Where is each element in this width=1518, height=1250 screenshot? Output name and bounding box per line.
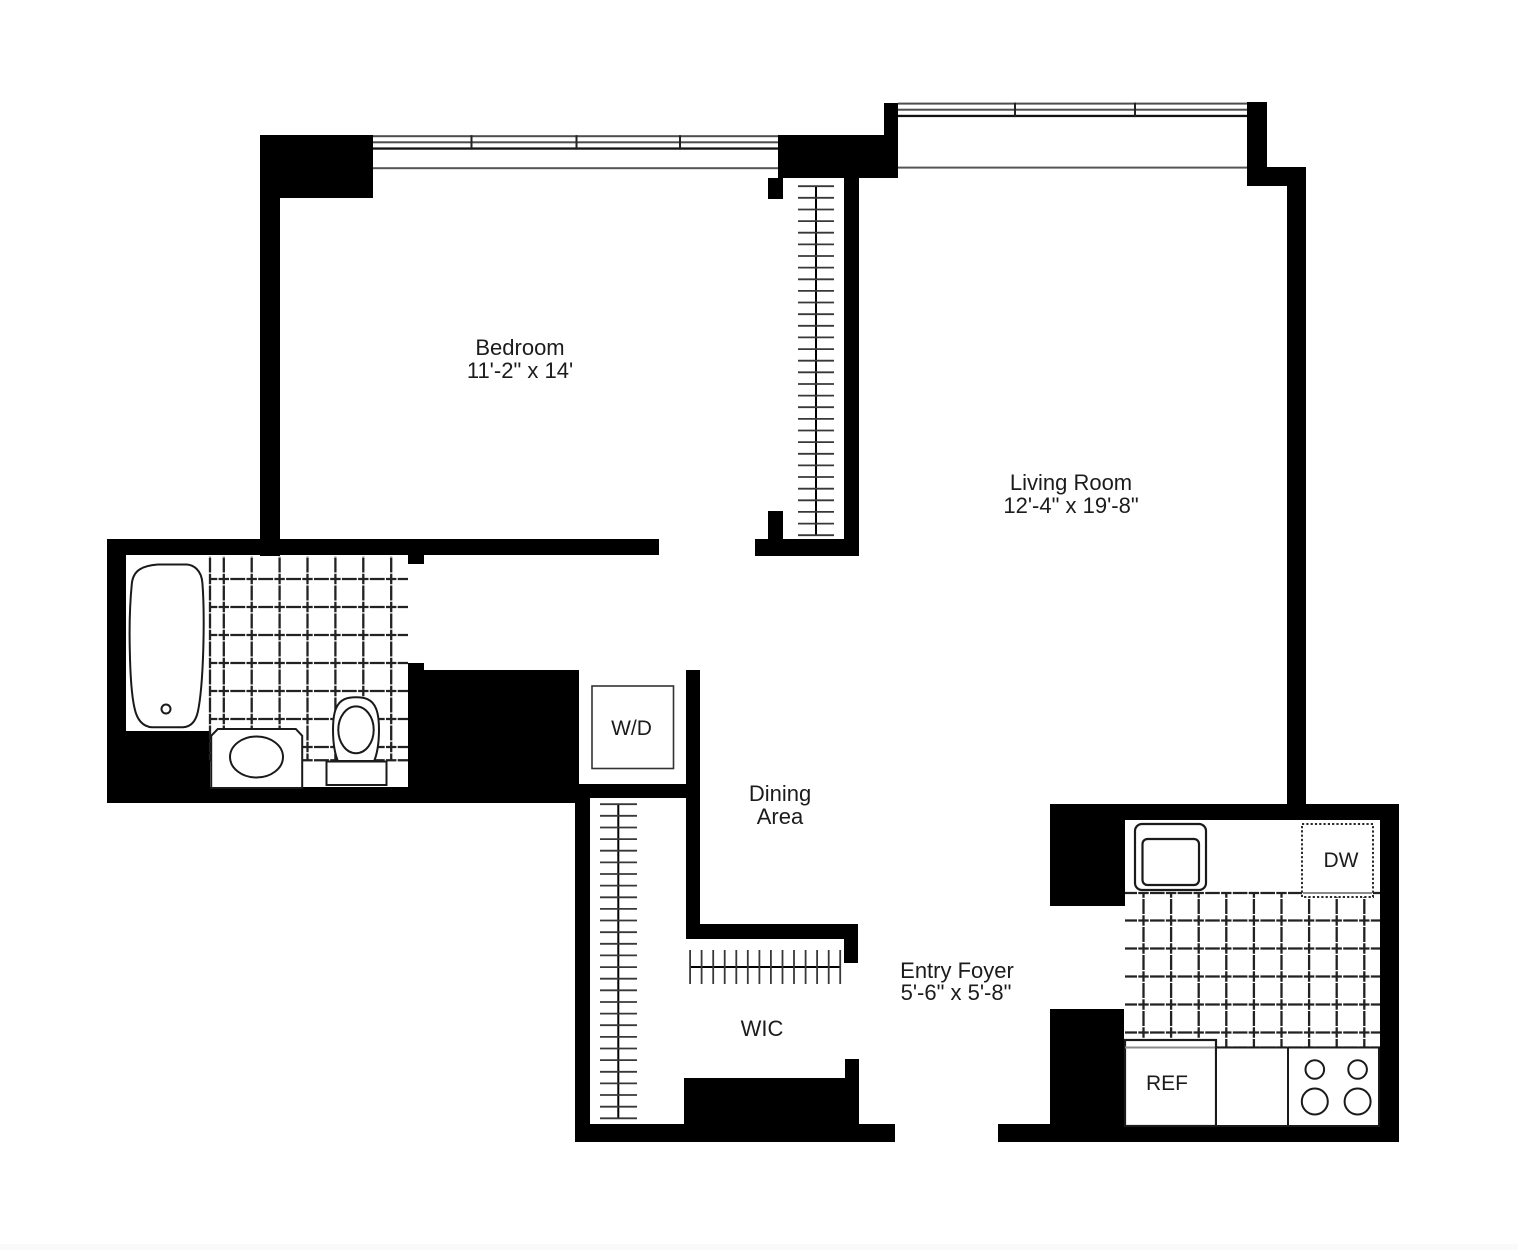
svg-text:Bedroom: Bedroom bbox=[475, 335, 564, 360]
svg-text:WIC: WIC bbox=[741, 1016, 784, 1041]
svg-text:Dining: Dining bbox=[749, 781, 811, 806]
svg-text:Living Room: Living Room bbox=[1010, 470, 1132, 495]
svg-text:5'-6" x 5'-8": 5'-6" x 5'-8" bbox=[901, 980, 1012, 1005]
svg-text:DW: DW bbox=[1324, 849, 1359, 872]
svg-text:Area: Area bbox=[757, 804, 804, 829]
svg-text:12'-4" x 19'-8": 12'-4" x 19'-8" bbox=[1003, 493, 1138, 518]
svg-text:REF: REF bbox=[1146, 1072, 1188, 1095]
svg-text:W/D: W/D bbox=[611, 717, 652, 740]
svg-text:11'-2" x 14': 11'-2" x 14' bbox=[467, 358, 573, 383]
